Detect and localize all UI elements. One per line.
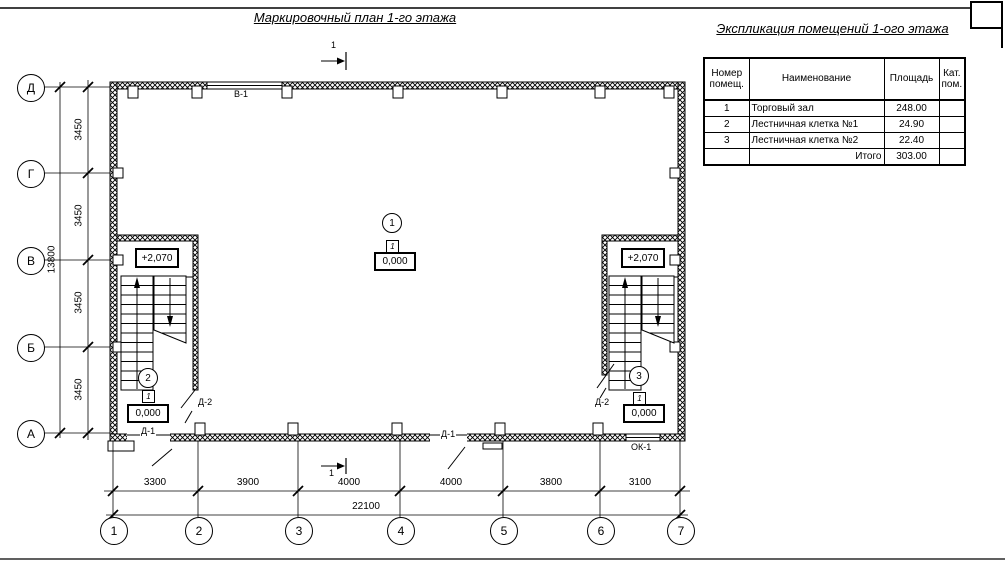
room-category [939,117,965,133]
table-row: 3 Лестничная клетка №2 22.40 [704,133,965,149]
table-header-row: Номер помещ. Наименование Площадь Кат. п… [704,58,965,100]
dimension-value: 3100 [620,477,660,488]
dimension-total-height: 13800 [47,240,58,280]
table-row: 1 Торговый зал 248.00 [704,100,965,117]
porches [108,441,502,451]
axis-circle-row: Г [17,160,45,188]
col-header-name: Наименование [749,58,884,100]
axis-circle-col: 1 [100,517,128,545]
axis-circle-col: 3 [285,517,313,545]
dimension-total-width: 22100 [336,501,396,512]
room-number: 2 [704,117,749,133]
total-area: 303.00 [884,149,939,166]
total-label: Итого [749,149,884,166]
section-mark-label: 1 [328,469,335,479]
room-number: 1 [704,100,749,117]
dimension-value: 3300 [135,477,175,488]
dimension-value: 3450 [74,115,85,145]
section-arrow-top [321,52,346,70]
col-header-area: Площадь [884,58,939,100]
room-tag-circle: 1 [382,213,402,233]
level-mark: 0,000 [623,404,665,423]
door-label: Д-2 [594,398,610,408]
axis-circle-col: 6 [587,517,615,545]
plan-title: Маркировочный план 1-го этажа [170,10,540,25]
drawing-sheet: Маркировочный план 1-го этажа Экспликаци… [0,0,1005,565]
room-name: Лестничная клетка №1 [749,117,884,133]
axis-circle-row: В [17,247,45,275]
dimension-value: 3450 [74,375,85,405]
col-header-number: Номер помещ. [704,58,749,100]
floor-type-mark: 1 [142,390,155,403]
empty-cell [939,149,965,166]
room-name: Лестничная клетка №2 [749,133,884,149]
dimension-value: 4000 [431,477,471,488]
level-mark-landing: +2,070 [621,248,665,268]
level-mark: 0,000 [127,404,169,423]
room-name: Торговый зал [749,100,884,117]
room-category [939,100,965,117]
axis-circle-col: 2 [185,517,213,545]
dimension-value: 3450 [74,201,85,231]
col-header-category: Кат. пом. [939,58,965,100]
level-mark: 0,000 [374,252,416,271]
room-area: 248.00 [884,100,939,117]
axis-circle-col: 7 [667,517,695,545]
empty-cell [704,149,749,166]
room-tag-circle: 3 [629,366,649,386]
room-category [939,133,965,149]
axis-circle-row: Б [17,334,45,362]
legend-title: Экспликация помещений 1-ого этажа [705,21,960,36]
axis-circle-row: Д [17,74,45,102]
window-label: В-1 [233,90,249,100]
dimension-value: 3900 [228,477,268,488]
door-swings [152,364,614,469]
room-number: 3 [704,133,749,149]
axis-circle-col: 4 [387,517,415,545]
door-label: Д-2 [197,398,213,408]
axis-circle-col: 5 [490,517,518,545]
dimension-value: 3800 [531,477,571,488]
table-row: 2 Лестничная клетка №1 24.90 [704,117,965,133]
section-mark-label: 1 [330,41,337,51]
door-label: Д-1 [440,430,456,440]
axis-circle-row: А [17,420,45,448]
room-area: 24.90 [884,117,939,133]
room-tag-circle: 2 [138,368,158,388]
room-area: 22.40 [884,133,939,149]
level-mark-landing: +2,070 [135,248,179,268]
table-total-row: Итого 303.00 [704,149,965,166]
rooms-table: Номер помещ. Наименование Площадь Кат. п… [703,57,966,166]
window-label: ОК-1 [630,443,652,453]
door-label: Д-1 [140,427,156,437]
dimension-value: 3450 [74,288,85,318]
